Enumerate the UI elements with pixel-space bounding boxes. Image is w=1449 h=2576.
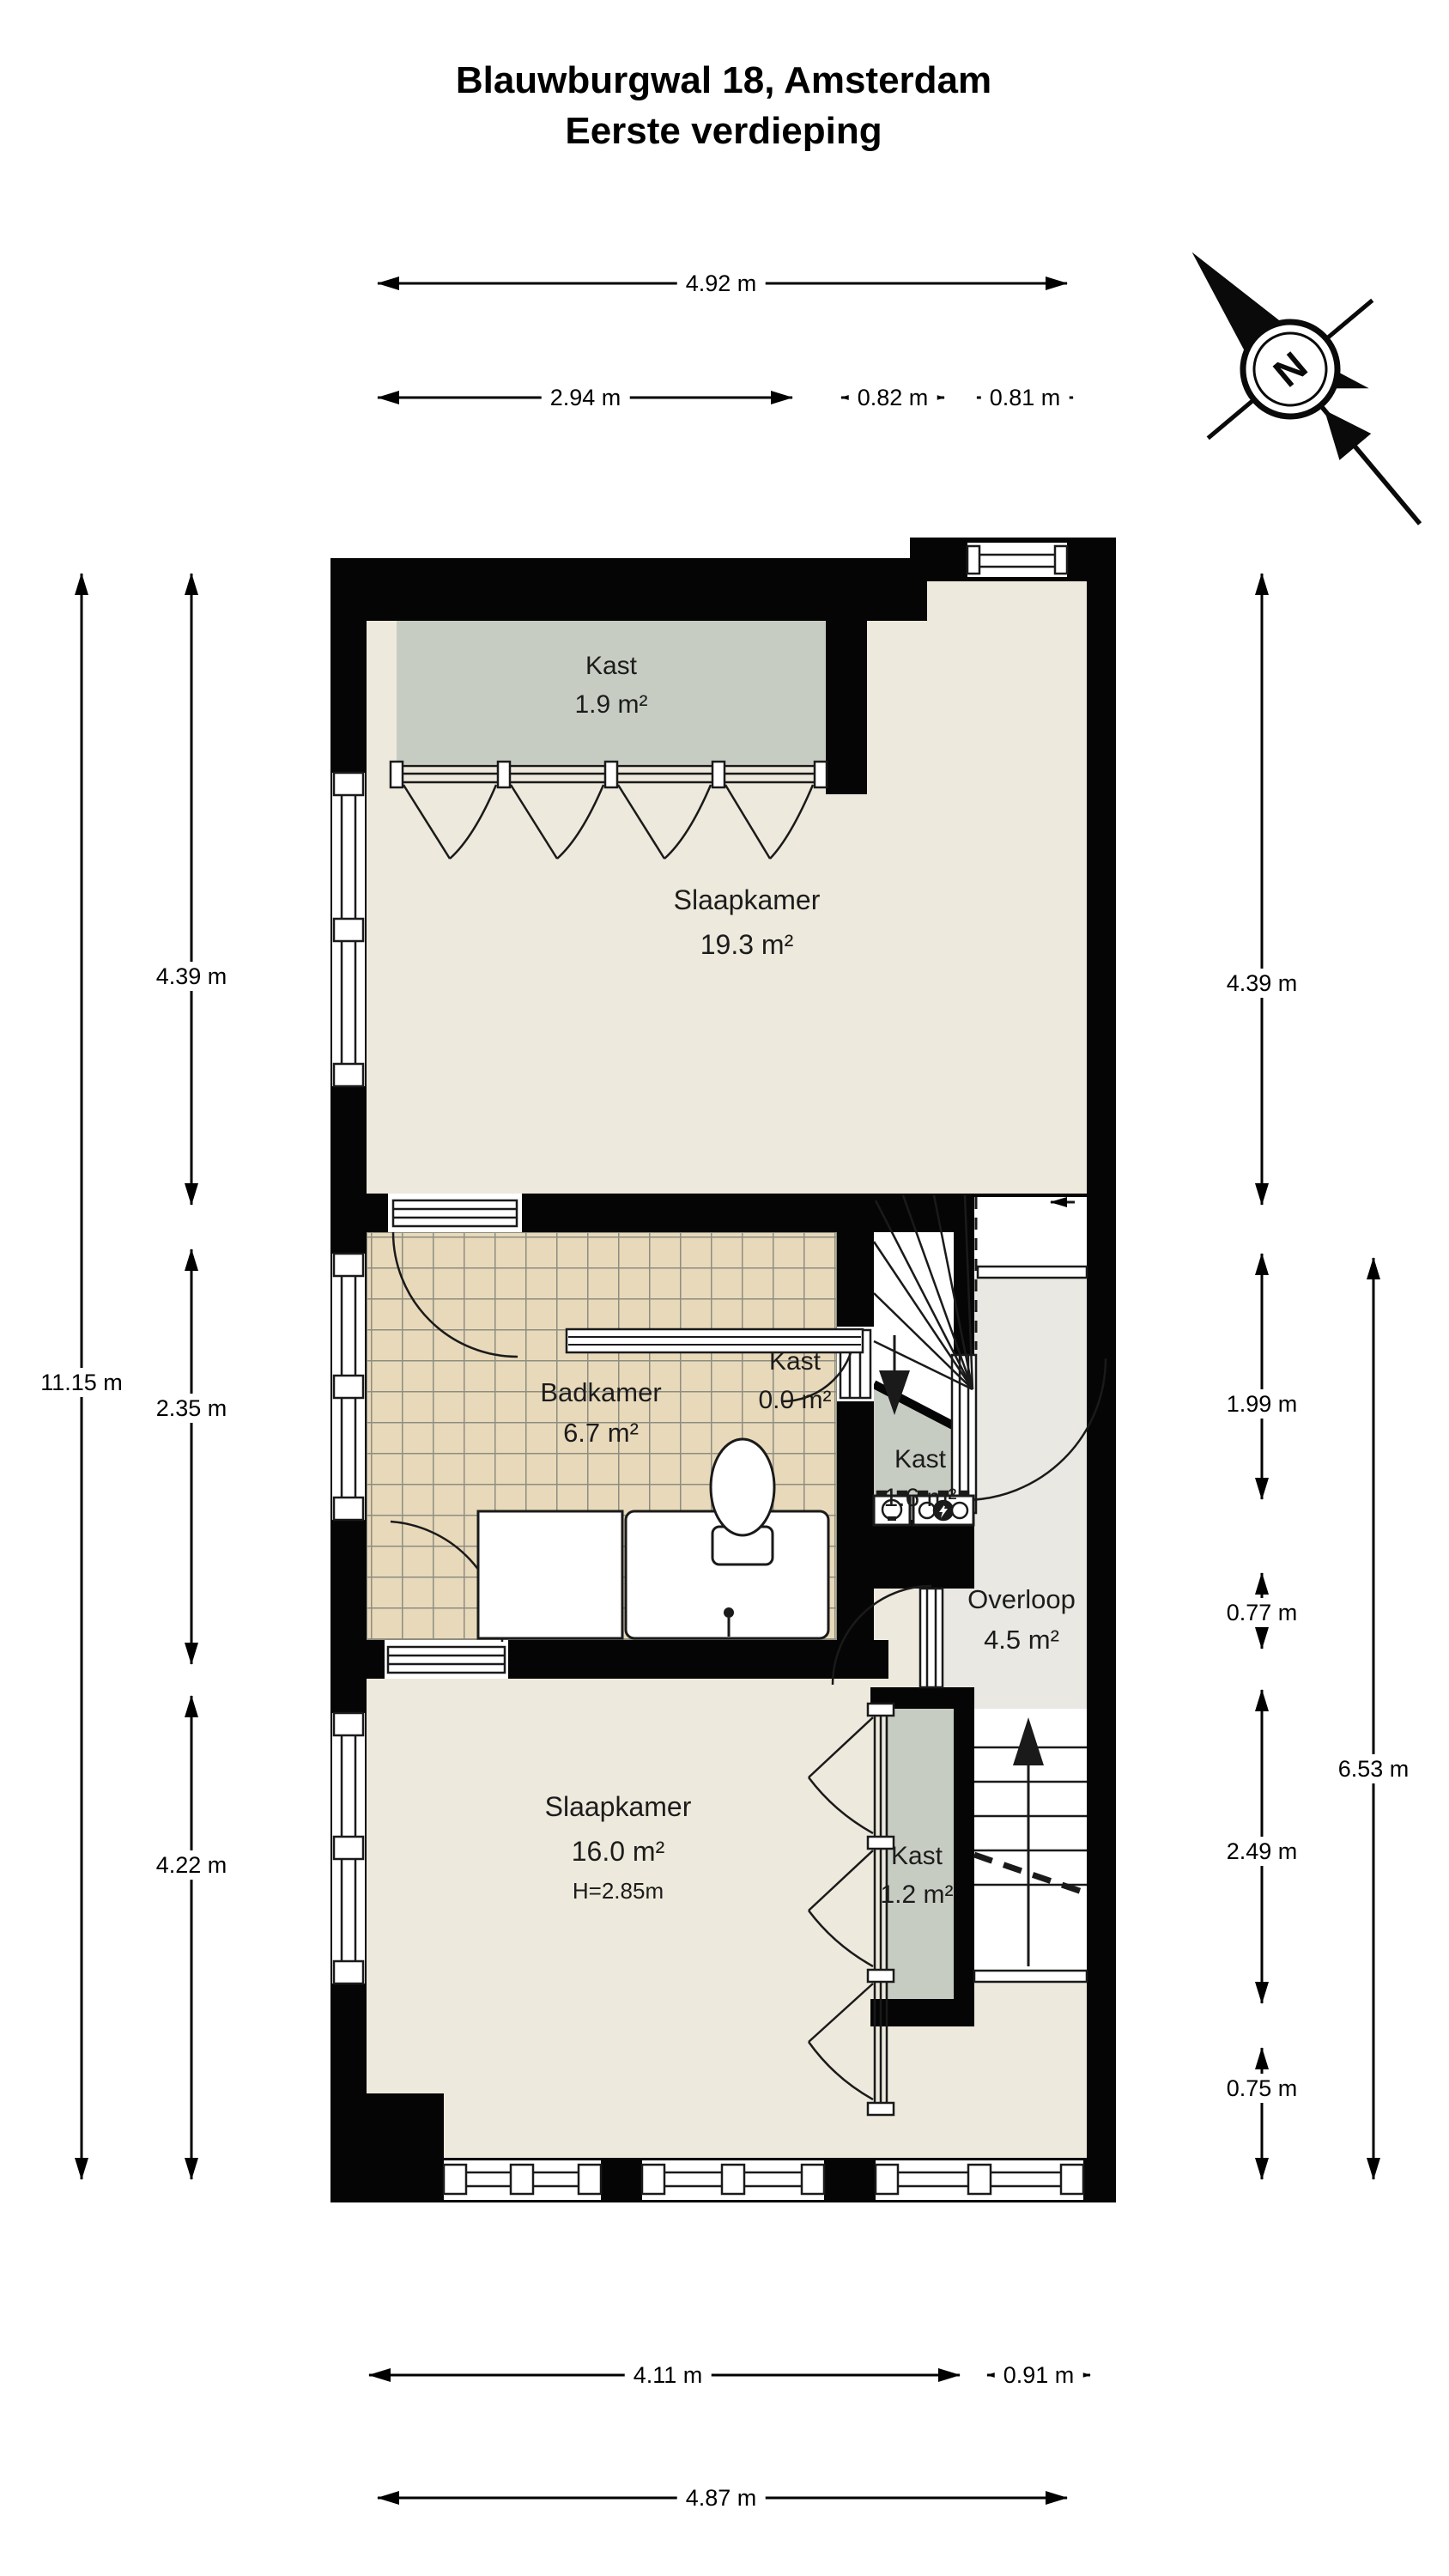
stair-railing (978, 1267, 1087, 1278)
dim-top-left: 2.94 m (542, 383, 630, 412)
bottom-window-3 (876, 2160, 1083, 2200)
floorplan-drawing: N (0, 0, 1449, 2576)
dim-left-bottom: 4.22 m (148, 1850, 236, 1880)
vanity-sink-icon (478, 1511, 828, 1638)
room-label-kast-trap: Kast1.6 m² (883, 1440, 956, 1517)
room-label-kast-smal: Kast1.2 m² (880, 1837, 953, 1914)
dim-right-top: 4.39 m (1218, 969, 1307, 998)
toilet-icon (711, 1439, 774, 1564)
dim-right-total: 6.53 m (1330, 1754, 1418, 1783)
stair-edge (974, 1971, 1087, 1982)
title-floor: Eerste verdieping (456, 106, 991, 156)
dim-left-total: 11.15 m (32, 1368, 131, 1397)
dim-top-mid: 0.82 m (849, 383, 937, 412)
room-label-kast-boven: Kast1.9 m² (574, 647, 647, 724)
dim-right-overloop: 0.77 m (1218, 1598, 1307, 1627)
title-address: Blauwburgwal 18, Amsterdam (456, 55, 991, 106)
bottom-window-2 (642, 2160, 824, 2200)
page-title: Blauwburgwal 18, Amsterdam Eerste verdie… (456, 55, 991, 157)
dim-left-top: 4.39 m (148, 962, 236, 991)
dim-left-mid: 2.35 m (148, 1394, 236, 1423)
room-label-overloop: Overloop4.5 m² (967, 1579, 1076, 1660)
bottom-window-1 (444, 2160, 601, 2200)
dim-bottom-total: 4.87 m (677, 2483, 766, 2512)
floors (367, 562, 1087, 2158)
dim-bottom-left: 4.11 m (625, 2360, 712, 2390)
left-window-3 (332, 1713, 365, 1984)
left-window-2 (332, 1254, 365, 1520)
compass-icon: N (1110, 183, 1449, 592)
left-window-1 (332, 773, 365, 1086)
dim-bottom-right: 0.91 m (995, 2360, 1083, 2390)
dim-top-right: 0.81 m (981, 383, 1070, 412)
room-label-kast-nul: Kast0.0 m² (758, 1342, 831, 1419)
dim-right-upper: 1.99 m (1218, 1389, 1307, 1419)
room-label-badkamer: Badkamer6.7 m² (540, 1372, 661, 1453)
dim-top-total: 4.92 m (677, 269, 766, 298)
room-label-slaapkamer-1: Slaapkamer19.3 m² (674, 878, 821, 967)
dim-right-lower: 2.49 m (1218, 1837, 1307, 1866)
room-label-slaapkamer-2: Slaapkamer16.0 m² H=2.85m (545, 1784, 692, 1908)
dim-right-bottom: 0.75 m (1218, 2074, 1307, 2103)
floorplan-page: N Blauwburgwal 18, Amsterdam Eerste verd… (0, 0, 1449, 2576)
